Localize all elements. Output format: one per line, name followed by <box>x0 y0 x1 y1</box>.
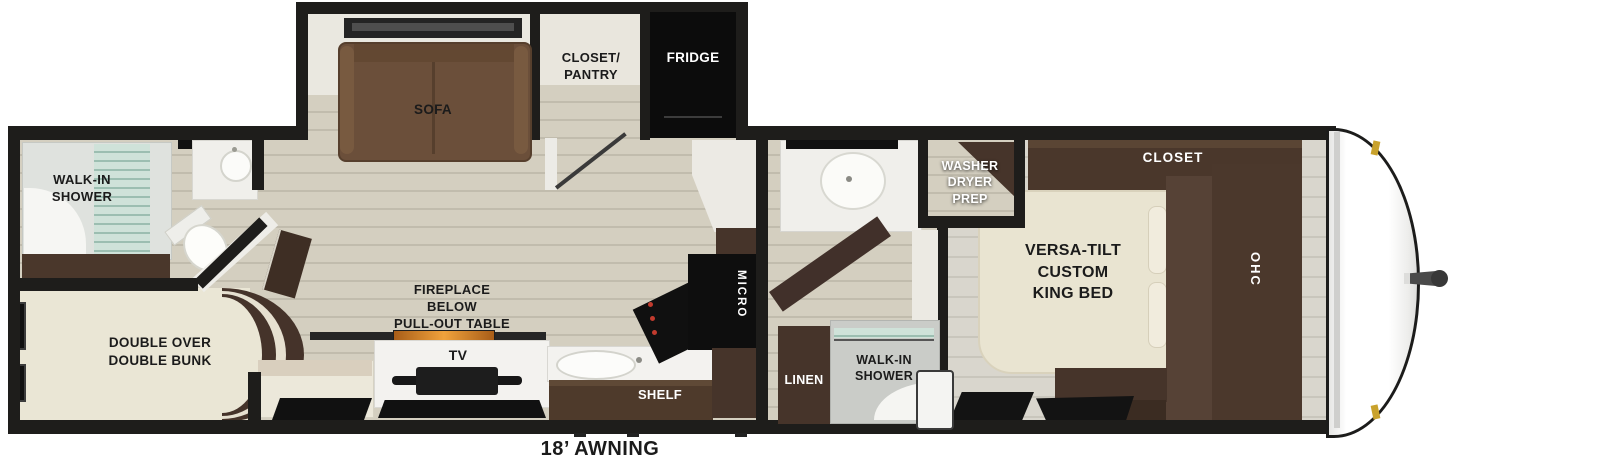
tv <box>416 367 498 395</box>
sofa-label: SOFA <box>388 101 478 119</box>
rear-bath-sink <box>220 150 252 182</box>
wall-washer-bottom <box>918 216 1025 228</box>
awning-arm-mark-3 <box>735 433 747 437</box>
wall-bottom <box>8 420 1338 434</box>
sofa-arm-left <box>340 46 354 154</box>
midbath-sink <box>820 152 886 210</box>
midbath-faucet <box>846 176 852 182</box>
rear-bath-faucet <box>232 147 237 152</box>
floorplan-canvas: WALK-IN SHOWER DOUBLE OVER DOUBLE BUNK S… <box>0 0 1600 460</box>
micro-label: MICRO <box>730 270 746 342</box>
fireplace-label: FIREPLACE BELOW PULL-OUT TABLE <box>372 282 532 333</box>
shelf-label: SHELF <box>600 387 720 404</box>
wall-top-right <box>736 126 1336 140</box>
pantry-floor <box>540 85 642 140</box>
midbath-mirror <box>786 140 898 149</box>
range-knob-1 <box>648 302 653 307</box>
kitchen-sink <box>556 350 636 380</box>
entry-step-2 <box>1036 396 1134 420</box>
hitch-jack <box>1404 273 1411 284</box>
awning-label: 18’ AWNING <box>480 436 720 460</box>
fridge-label: FRIDGE <box>650 49 736 67</box>
fridge-divider-line <box>664 116 722 118</box>
rear-bath-ledge <box>22 254 170 278</box>
pantry-label: CLOSET/ PANTRY <box>542 50 640 84</box>
sofa-arm-right <box>514 46 528 154</box>
kitchen-faucet <box>636 357 642 363</box>
range-knob-2 <box>650 316 655 321</box>
ohc-front <box>1166 176 1212 420</box>
entry-door-stub <box>545 138 557 190</box>
tv-kickplate <box>378 400 546 418</box>
bedroom-closet-edge <box>1028 140 1302 148</box>
entry-mat <box>272 398 372 420</box>
hitch-coupler <box>1431 270 1448 287</box>
sofa-window-glass <box>352 23 514 31</box>
wall-midbath-left <box>756 138 768 424</box>
front-cap-trim <box>1334 132 1340 428</box>
range-knob-3 <box>652 330 657 335</box>
shelf-edge <box>549 380 713 386</box>
wall-slideout-right <box>736 2 748 140</box>
entry-step-1 <box>950 392 1034 420</box>
wall-slideout-left <box>296 2 308 140</box>
washer-label: WASHER DRYER PREP <box>918 158 1022 207</box>
wall-pantry-right <box>640 2 650 140</box>
cabinet-above-micro <box>716 228 756 256</box>
bunk-label: DOUBLE OVER DOUBLE BUNK <box>70 334 250 369</box>
tv-label: TV <box>420 346 496 364</box>
rear-shower-label: WALK-IN SHOWER <box>26 172 138 206</box>
main-entry-door <box>916 370 954 430</box>
ohc-label: OHC <box>1244 252 1262 316</box>
entry-dresser-top <box>258 360 372 376</box>
mid-shower-glass <box>834 328 934 338</box>
sofa-back <box>354 44 514 62</box>
midbath-halfwall <box>912 230 938 326</box>
mid-shower-rod <box>834 339 934 341</box>
fridge <box>650 12 736 138</box>
wall-bath-divider <box>8 278 198 291</box>
wall-toilet-nook <box>252 130 264 190</box>
bed-label: VERSA-TILT CUSTOM KING BED <box>990 240 1156 305</box>
cabinet-below-micro <box>712 348 756 418</box>
wall-bunk-right <box>248 372 261 422</box>
linen-label: LINEN <box>772 372 836 388</box>
